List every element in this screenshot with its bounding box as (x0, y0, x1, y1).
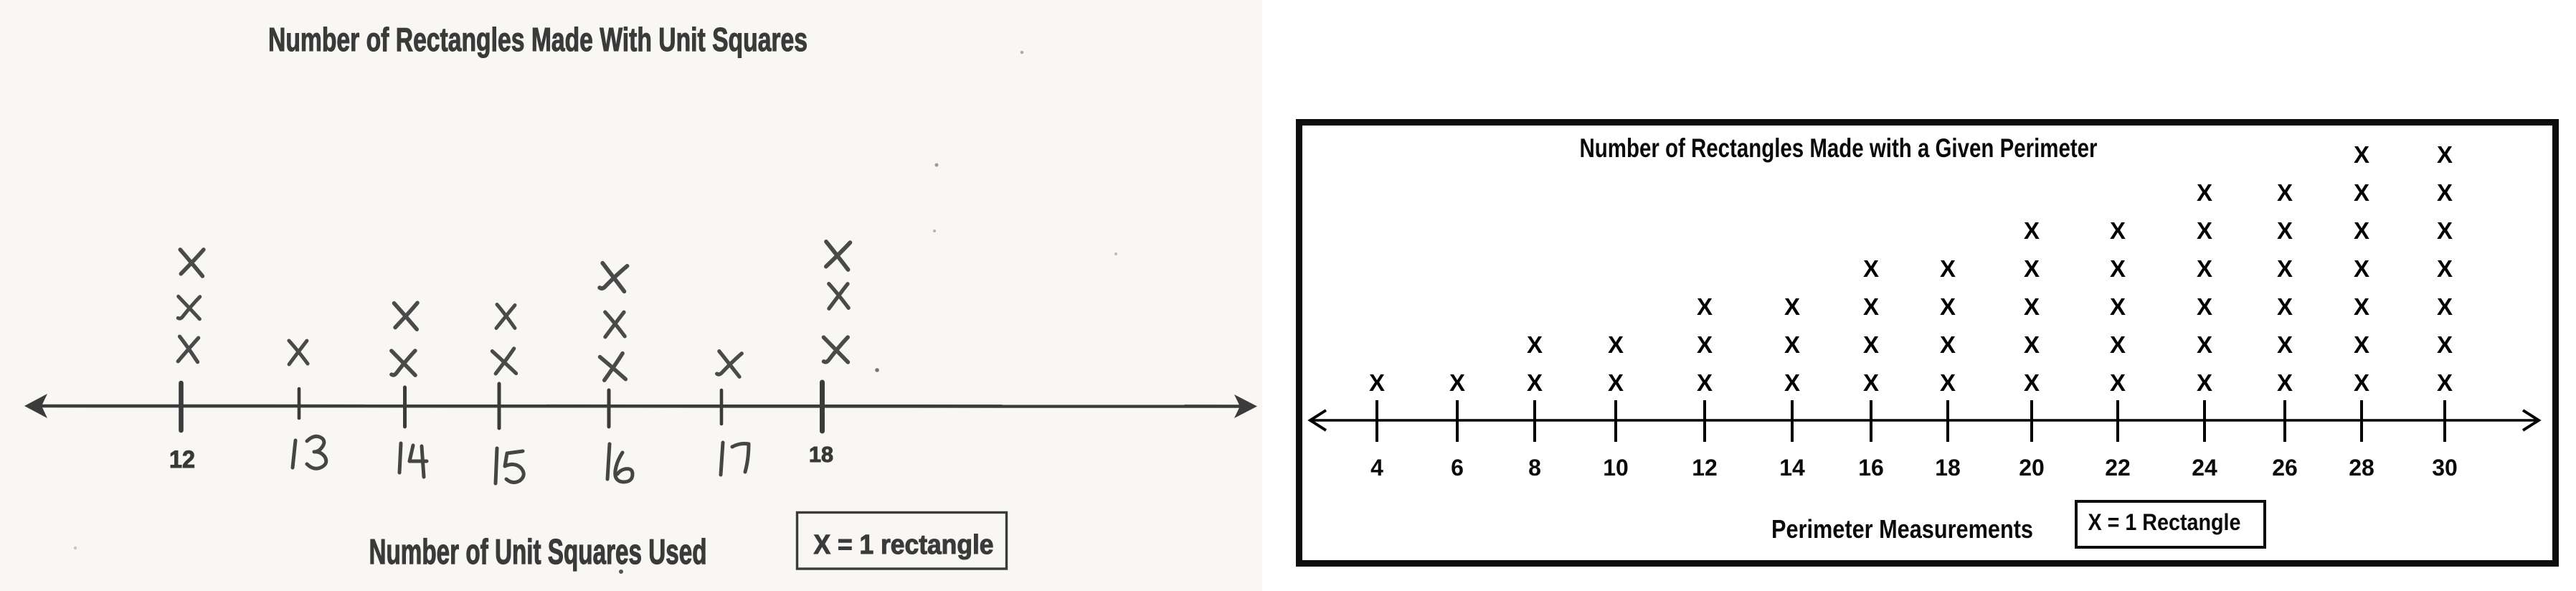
svg-text:X: X (2197, 217, 2212, 244)
svg-text:X: X (2197, 255, 2212, 282)
svg-text:X: X (2110, 331, 2126, 358)
svg-text:X: X (2354, 369, 2369, 396)
svg-text:X: X (2437, 369, 2453, 396)
svg-text:X: X (1369, 369, 1385, 396)
svg-text:14: 14 (1779, 455, 1805, 481)
svg-text:Perimeter Measurements: Perimeter Measurements (1771, 514, 2033, 544)
svg-text:X: X (2197, 331, 2212, 358)
svg-text:6: 6 (1451, 455, 1464, 481)
svg-text:X: X (2354, 179, 2369, 206)
svg-text:X: X (2110, 293, 2126, 320)
svg-text:X: X (1784, 331, 1800, 358)
svg-text:X: X (2197, 369, 2212, 396)
svg-text:X: X (2277, 369, 2293, 396)
svg-text:X: X (2197, 179, 2212, 206)
svg-text:X: X (1940, 369, 1956, 396)
svg-text:4: 4 (1370, 455, 1383, 481)
svg-text:X: X (1784, 293, 1800, 320)
svg-text:X: X (1940, 255, 1956, 282)
svg-text:18: 18 (1935, 455, 1961, 481)
svg-text:X: X (2437, 255, 2453, 282)
svg-text:X = 1 Rectangle: X = 1 Rectangle (2088, 509, 2241, 535)
svg-text:X: X (2277, 255, 2293, 282)
svg-text:X: X (2024, 331, 2040, 358)
svg-text:X: X (1449, 369, 1465, 396)
svg-text:X: X (1863, 369, 1879, 396)
svg-text:X: X (2277, 331, 2293, 358)
svg-text:8: 8 (1528, 455, 1541, 481)
svg-text:18: 18 (809, 442, 833, 467)
svg-text:X = 1 rectangle: X = 1 rectangle (814, 530, 994, 560)
svg-text:X: X (1863, 255, 1879, 282)
svg-text:X: X (1784, 369, 1800, 396)
svg-text:X: X (2024, 293, 2040, 320)
svg-text:X: X (1863, 331, 1879, 358)
svg-text:X: X (2197, 293, 2212, 320)
svg-text:X: X (2354, 141, 2369, 168)
svg-text:X: X (2277, 179, 2293, 206)
svg-text:X: X (1697, 331, 1713, 358)
svg-text:X: X (2024, 217, 2040, 244)
svg-text:30: 30 (2432, 455, 2458, 481)
svg-text:X: X (2110, 255, 2126, 282)
svg-text:12: 12 (1692, 455, 1718, 481)
svg-text:Number of Rectangles Made With: Number of Rectangles Made With Unit Squa… (268, 21, 808, 58)
svg-text:X: X (2277, 217, 2293, 244)
svg-text:X: X (2110, 217, 2126, 244)
svg-text:X: X (2437, 179, 2453, 206)
svg-text:16: 16 (1858, 455, 1884, 481)
svg-text:26: 26 (2272, 455, 2298, 481)
svg-text:X: X (2354, 331, 2369, 358)
svg-text:28: 28 (2349, 455, 2374, 481)
svg-text:X: X (2024, 369, 2040, 396)
svg-text:Number of Unit Squares Used: Number of Unit Squares Used (369, 533, 707, 572)
svg-text:X: X (2354, 293, 2369, 320)
svg-text:X: X (1608, 369, 1624, 396)
svg-text:X: X (2437, 293, 2453, 320)
svg-text:X: X (2437, 141, 2453, 168)
svg-text:X: X (2354, 255, 2369, 282)
svg-text:X: X (1940, 331, 1956, 358)
svg-text:X: X (1527, 331, 1543, 358)
svg-text:24: 24 (2192, 455, 2217, 481)
svg-text:X: X (1697, 293, 1713, 320)
svg-text:X: X (1527, 369, 1543, 396)
svg-text:X: X (1608, 331, 1624, 358)
svg-text:X: X (2024, 255, 2040, 282)
svg-text:22: 22 (2105, 455, 2131, 481)
svg-text:X: X (1863, 293, 1879, 320)
svg-text:Number of Rectangles Made with: Number of Rectangles Made with a Given P… (1580, 133, 2098, 163)
svg-text:X: X (1697, 369, 1713, 396)
svg-text:X: X (2354, 217, 2369, 244)
svg-text:X: X (2437, 331, 2453, 358)
svg-text:20: 20 (2019, 455, 2045, 481)
svg-text:12: 12 (169, 446, 195, 473)
svg-text:X: X (1940, 293, 1956, 320)
svg-text:10: 10 (1603, 455, 1629, 481)
svg-text:X: X (2110, 369, 2126, 396)
svg-text:X: X (2277, 293, 2293, 320)
svg-text:X: X (2437, 217, 2453, 244)
